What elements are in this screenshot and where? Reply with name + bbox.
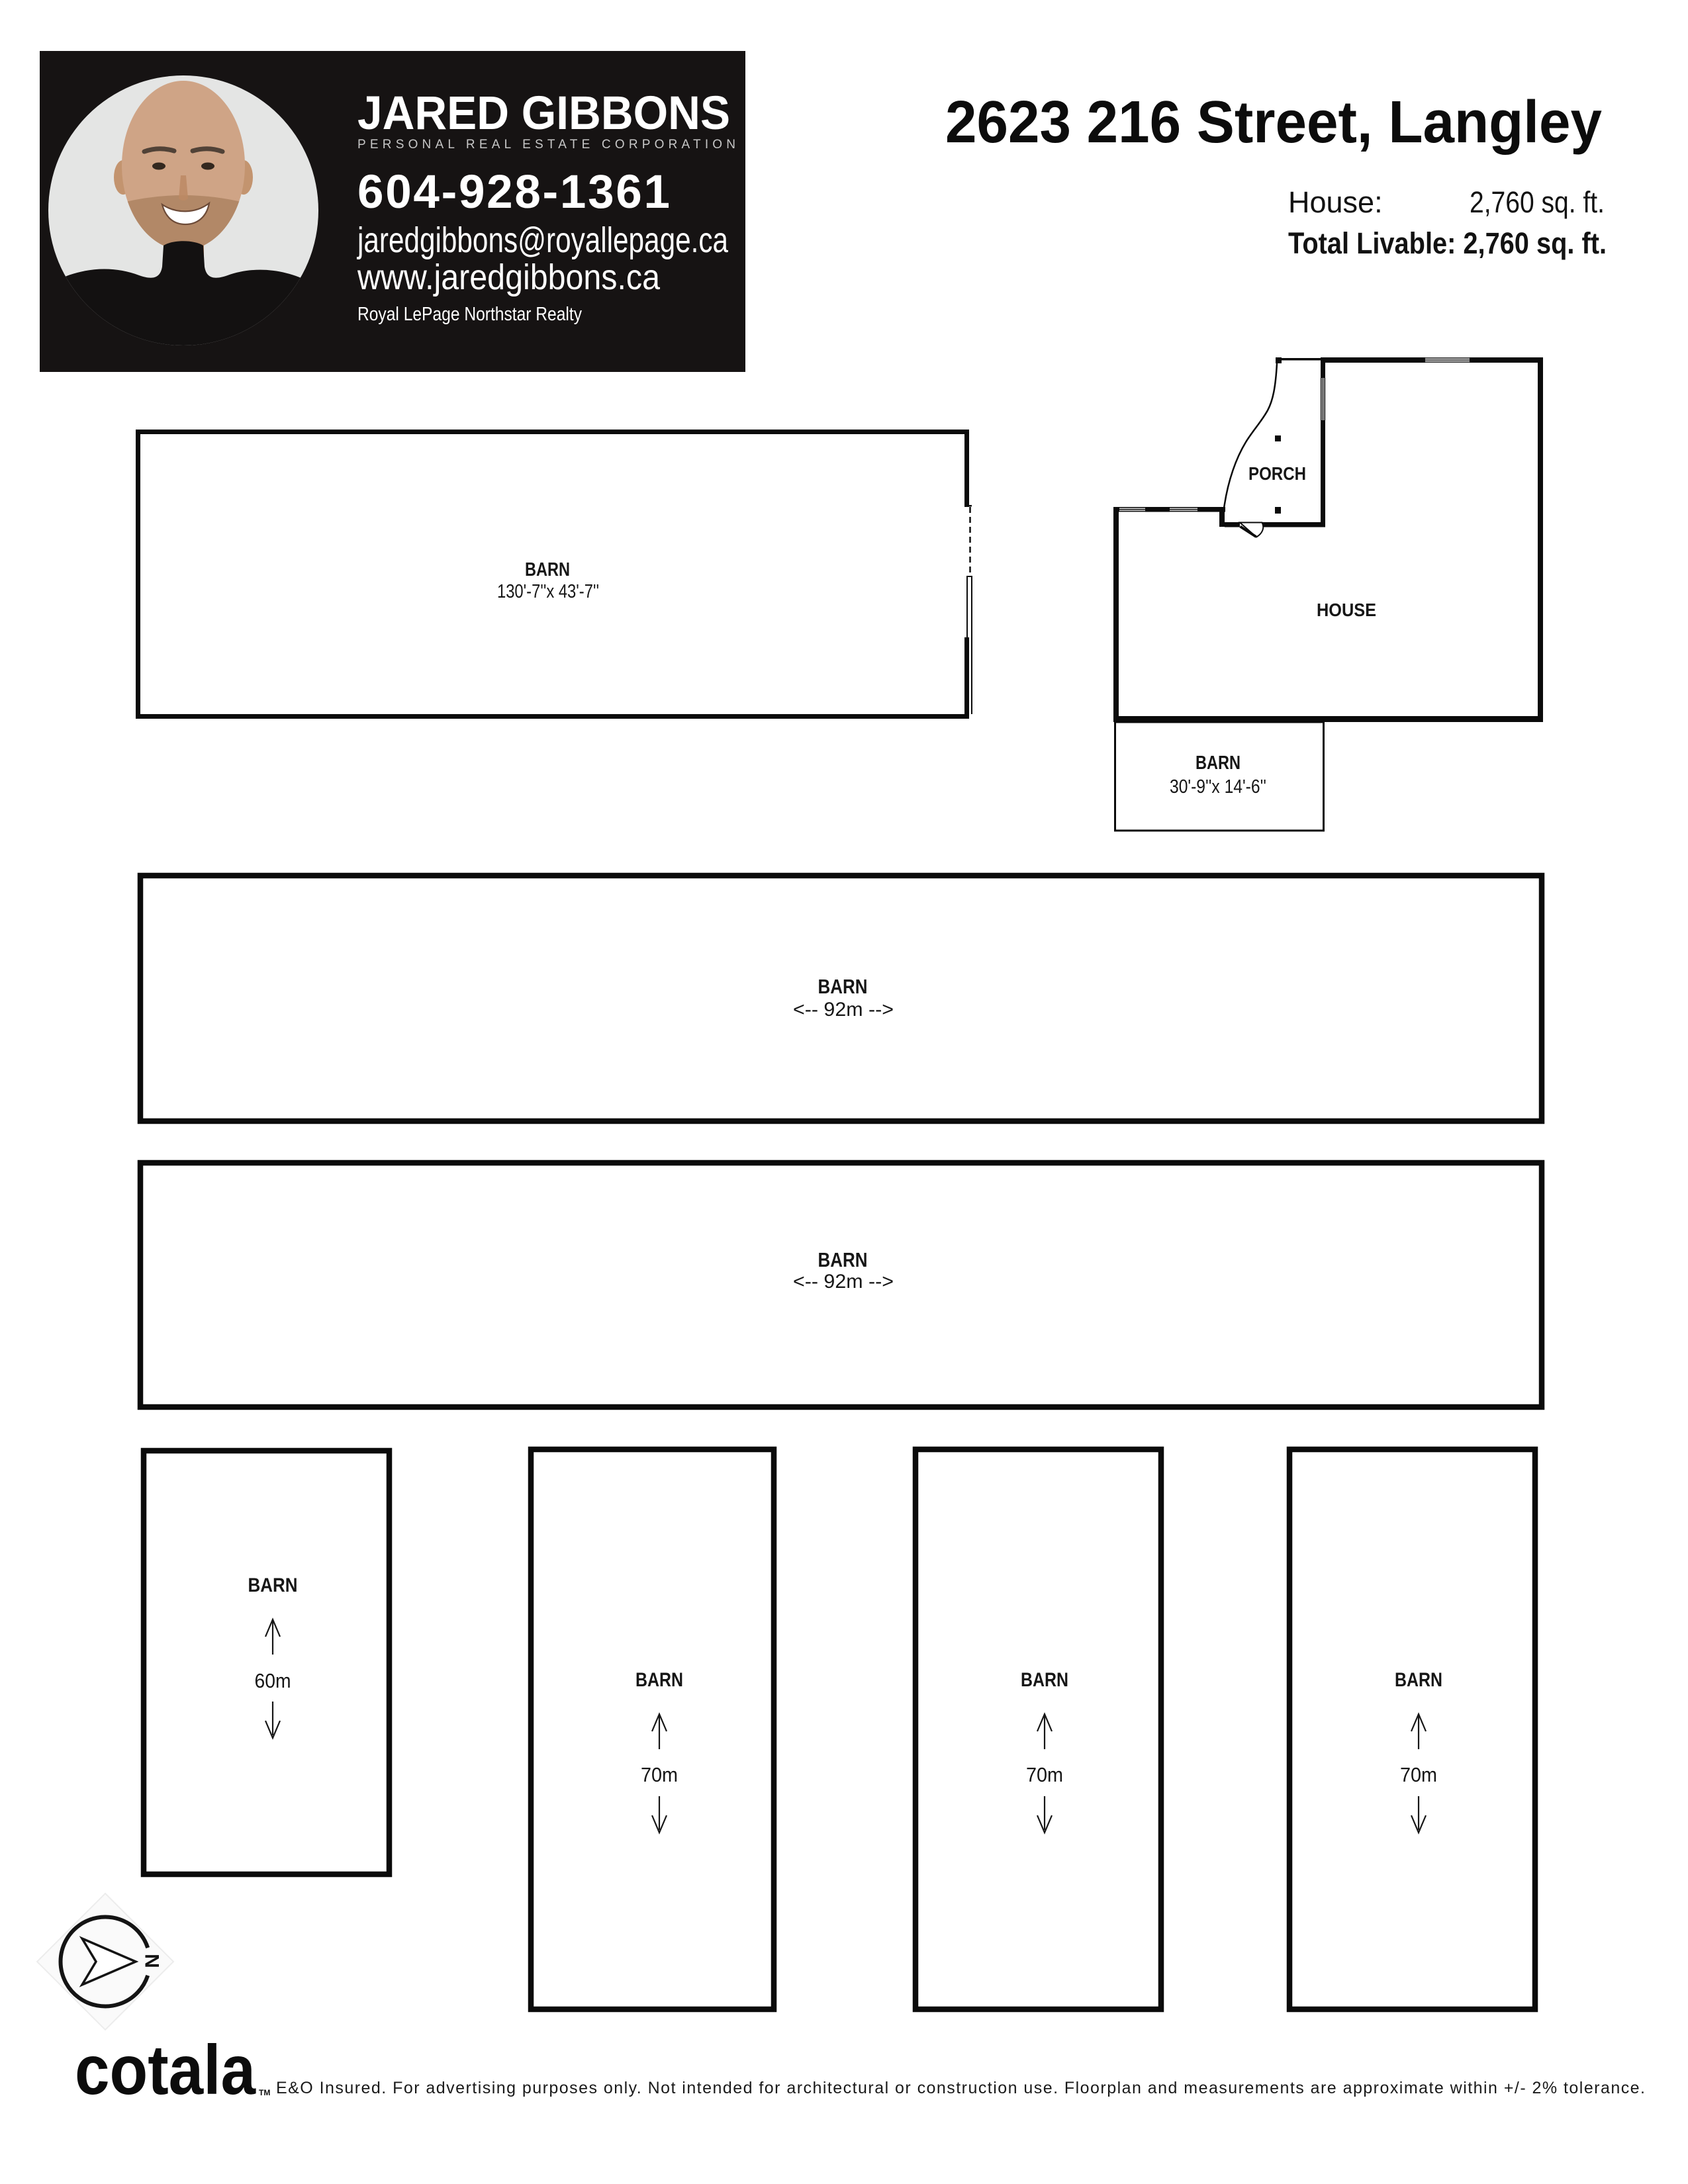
svg-text:BARN: BARN bbox=[818, 975, 868, 998]
svg-text:House:: House: bbox=[1288, 185, 1383, 219]
svg-text:BARN: BARN bbox=[1021, 1669, 1068, 1691]
svg-text:70m: 70m bbox=[641, 1763, 678, 1786]
svg-text:PORCH: PORCH bbox=[1248, 463, 1306, 484]
svg-text:HOUSE: HOUSE bbox=[1317, 600, 1376, 620]
svg-text:Total Livable: 2,760 sq. ft.: Total Livable: 2,760 sq. ft. bbox=[1288, 226, 1607, 260]
svg-text:60m: 60m bbox=[255, 1669, 291, 1692]
svg-text:2623 216 Street, Langley: 2623 216 Street, Langley bbox=[945, 89, 1602, 156]
svg-text:BARN: BARN bbox=[525, 559, 570, 580]
svg-text:70m: 70m bbox=[1400, 1763, 1437, 1786]
svg-text:cotala: cotala bbox=[75, 2031, 256, 2109]
svg-text:BARN: BARN bbox=[1395, 1669, 1442, 1691]
svg-text:E&O Insured. For advertising p: E&O Insured. For advertising purposes on… bbox=[276, 2079, 1645, 2097]
svg-text:130'-7''x 43'-7'': 130'-7''x 43'-7'' bbox=[497, 581, 599, 602]
svg-text:BARN: BARN bbox=[1196, 752, 1241, 774]
svg-text:BARN: BARN bbox=[635, 1669, 683, 1691]
svg-text:<-- 92m -->: <-- 92m --> bbox=[793, 1271, 894, 1293]
svg-text:JARED GIBBONS: JARED GIBBONS bbox=[357, 87, 730, 140]
svg-text:BARN: BARN bbox=[818, 1248, 868, 1271]
svg-text:Royal LePage Northstar Realty: Royal LePage Northstar Realty bbox=[357, 304, 582, 325]
svg-text:2,760 sq. ft.: 2,760 sq. ft. bbox=[1470, 185, 1605, 219]
svg-text:<-- 92m -->: <-- 92m --> bbox=[793, 999, 894, 1021]
svg-text:jaredgibbons@royallepage.ca: jaredgibbons@royallepage.ca bbox=[356, 220, 728, 260]
svg-text:70m: 70m bbox=[1026, 1763, 1063, 1786]
svg-text:TM: TM bbox=[259, 2088, 270, 2097]
svg-text:www.jaredgibbons.ca: www.jaredgibbons.ca bbox=[357, 257, 661, 297]
svg-text:N: N bbox=[141, 1954, 163, 1968]
svg-text:30'-9''x 14'-6'': 30'-9''x 14'-6'' bbox=[1170, 776, 1266, 797]
svg-text:BARN: BARN bbox=[248, 1574, 298, 1596]
